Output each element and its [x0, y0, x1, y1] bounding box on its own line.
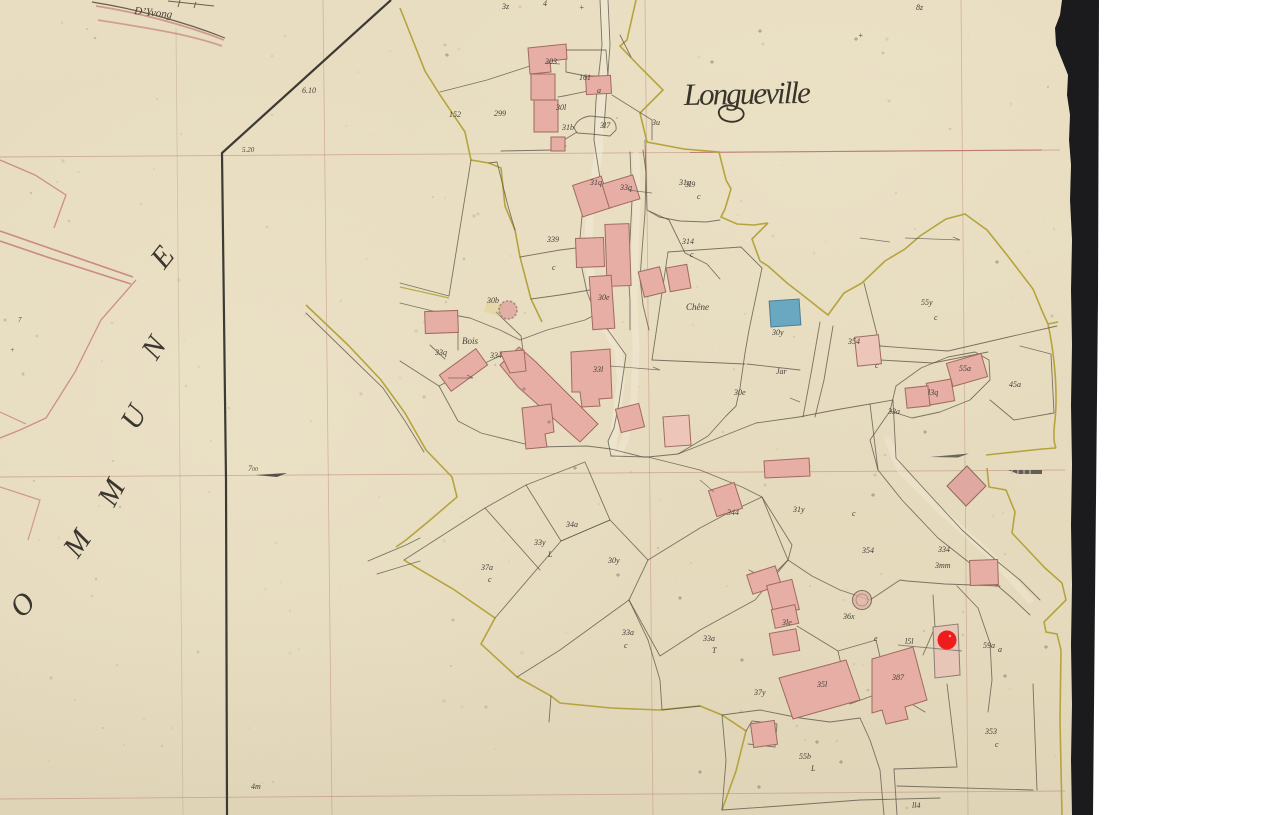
svg-text:L: L — [547, 550, 553, 559]
svg-text:33a: 33a — [887, 407, 900, 416]
svg-text:55y: 55y — [921, 298, 933, 307]
svg-text:c: c — [934, 313, 938, 322]
svg-text:299: 299 — [494, 109, 506, 118]
svg-text:59a: 59a — [983, 641, 995, 650]
svg-text:5.20: 5.20 — [242, 146, 255, 154]
svg-text:314: 314 — [681, 237, 694, 246]
svg-text:+: + — [858, 31, 863, 40]
svg-text:3mm: 3mm — [934, 561, 951, 570]
svg-text:l3q: l3q — [928, 388, 938, 397]
svg-text:Longueville: Longueville — [683, 75, 812, 112]
svg-text:33a: 33a — [702, 634, 715, 643]
svg-text:3u: 3u — [651, 118, 660, 127]
svg-text:37y: 37y — [753, 688, 766, 697]
svg-text:+: + — [579, 3, 584, 12]
svg-text:354: 354 — [861, 546, 874, 555]
svg-text:Jar: Jar — [776, 367, 788, 376]
svg-text:30y: 30y — [771, 328, 784, 337]
svg-text:30e: 30e — [733, 388, 746, 397]
svg-text:37a: 37a — [480, 563, 493, 572]
svg-text:c: c — [488, 575, 492, 584]
svg-text:3z: 3z — [501, 2, 510, 11]
svg-text:344: 344 — [726, 508, 739, 517]
svg-text:8z: 8z — [916, 3, 924, 12]
svg-text:45a: 45a — [1009, 380, 1021, 389]
svg-text:30y: 30y — [607, 556, 620, 565]
svg-text:c: c — [697, 192, 701, 201]
svg-text:+: + — [10, 346, 15, 354]
svg-text:a: a — [998, 645, 1002, 654]
svg-text:36x: 36x — [842, 612, 855, 621]
svg-text:3l7: 3l7 — [599, 121, 611, 130]
svg-text:c: c — [875, 361, 879, 370]
svg-text:c: c — [995, 740, 999, 749]
svg-text:334: 334 — [489, 351, 502, 360]
svg-text:4: 4 — [543, 0, 547, 8]
svg-text:c: c — [690, 250, 694, 259]
svg-text:30e: 30e — [597, 293, 610, 302]
svg-text:e: e — [874, 634, 878, 643]
svg-text:353: 353 — [984, 727, 997, 736]
svg-text:34a: 34a — [565, 520, 578, 529]
svg-text:c: c — [552, 263, 556, 272]
svg-text:161: 161 — [579, 73, 591, 82]
svg-text:L: L — [810, 764, 816, 773]
svg-text:152: 152 — [449, 110, 461, 119]
svg-text:31q: 31q — [589, 178, 602, 187]
svg-text:33l: 33l — [592, 365, 604, 374]
svg-text:4m: 4m — [251, 782, 261, 791]
svg-text:l5l: l5l — [905, 637, 914, 646]
svg-text:7: 7 — [18, 316, 22, 324]
svg-text:30l: 30l — [555, 103, 567, 112]
svg-text:55b: 55b — [799, 752, 811, 761]
svg-text:30b: 30b — [486, 296, 499, 305]
svg-text:c: c — [624, 641, 628, 650]
svg-text:ll4: ll4 — [912, 801, 920, 810]
svg-text:Chêne: Chêne — [686, 302, 709, 312]
svg-text:33y: 33y — [533, 538, 546, 547]
svg-text:31q: 31q — [678, 178, 691, 187]
svg-text:3le: 3le — [781, 618, 792, 627]
svg-text:Bois: Bois — [462, 336, 478, 346]
svg-text:339: 339 — [546, 235, 559, 244]
svg-text:31b: 31b — [561, 123, 574, 132]
svg-text:55a: 55a — [959, 364, 971, 373]
svg-text:33q: 33q — [619, 183, 632, 192]
svg-text:33a: 33a — [621, 628, 634, 637]
svg-text:354: 354 — [847, 337, 860, 346]
svg-text:303: 303 — [544, 57, 557, 66]
svg-text:a: a — [597, 86, 601, 95]
svg-text:334: 334 — [937, 545, 950, 554]
svg-text:T: T — [712, 646, 717, 655]
svg-text:33q: 33q — [434, 348, 447, 357]
svg-text:35l: 35l — [816, 680, 828, 689]
svg-text:31y: 31y — [792, 505, 805, 514]
svg-text:6.10: 6.10 — [302, 86, 316, 95]
svg-text:c: c — [852, 509, 856, 518]
svg-text:387: 387 — [891, 673, 905, 682]
